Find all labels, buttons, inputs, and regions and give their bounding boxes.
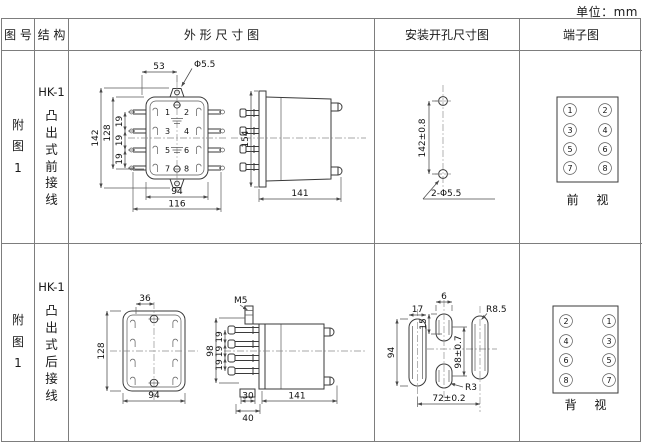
dim-mid-offset: 15 bbox=[419, 318, 429, 329]
radius-large-label: R8.5 bbox=[486, 305, 507, 315]
dim-top-width: 53 bbox=[153, 62, 164, 72]
view-label: 前 视 bbox=[567, 192, 616, 207]
row1-mounting-drawing: 142±0.8 2-Φ5.5 bbox=[375, 51, 520, 244]
terminal-number: 4 bbox=[184, 127, 189, 136]
model-label: HK-1 bbox=[38, 280, 64, 294]
dim-mid-width: 6 bbox=[441, 292, 447, 302]
terminal-number: 3 bbox=[606, 337, 611, 346]
terminal-number: 5 bbox=[567, 145, 572, 154]
dim-width: 94 bbox=[171, 187, 183, 197]
dim-side-depth: 141 bbox=[288, 392, 305, 402]
dim-center-height: 98±0.7 bbox=[454, 335, 464, 368]
dim-pitch: 19 bbox=[215, 331, 225, 343]
dim-height-outer: 142 bbox=[91, 129, 101, 146]
terminal-number: 7 bbox=[567, 164, 572, 173]
outline-front-wiring-svg: 1 2 3 4 5 6 7 8 53 Φ5.5 142 128 bbox=[69, 51, 374, 243]
terminal-number: 3 bbox=[165, 127, 170, 136]
radius-small-label: R3 bbox=[465, 383, 477, 393]
header-figure-no: 图 号 bbox=[2, 19, 35, 51]
side-view: 154 141 bbox=[231, 91, 366, 202]
row2-terminal-diagram: 2 1 4 3 6 5 8 7 背 视 bbox=[520, 244, 642, 441]
terminal-number: 5 bbox=[165, 146, 170, 155]
dim-pitch: 19 bbox=[115, 135, 125, 147]
terminal-number: 6 bbox=[563, 356, 568, 365]
dim-width-outer: 116 bbox=[168, 200, 185, 210]
terminal-number: 1 bbox=[567, 106, 572, 115]
terminal-number: 2 bbox=[602, 106, 607, 115]
dim-hole-diameter: Φ5.5 bbox=[194, 60, 215, 70]
header-terminal: 端子图 bbox=[520, 19, 642, 51]
terminal-number: 4 bbox=[602, 126, 607, 135]
row2-figure-no: 附图1 bbox=[2, 244, 35, 441]
front-view-dimensions: 53 Φ5.5 142 128 19 19 19 94 bbox=[91, 60, 221, 212]
terminal-number: 6 bbox=[184, 146, 189, 155]
model-label: HK-1 bbox=[38, 85, 64, 99]
row2-structure: HK-1 凸出式后接线 bbox=[35, 244, 69, 441]
figure-label: 附图1 bbox=[11, 310, 25, 375]
dim-left-height: 94 bbox=[387, 347, 397, 359]
terminal-number: 8 bbox=[602, 164, 607, 173]
dim-hole-spacing: 142±0.8 bbox=[418, 118, 428, 157]
front-view-case bbox=[128, 82, 226, 193]
terminal-number: 2 bbox=[184, 108, 189, 117]
dim-width: 94 bbox=[148, 391, 160, 401]
side-view-studs bbox=[228, 326, 259, 375]
row1-outline-drawing: 1 2 3 4 5 6 7 8 53 Φ5.5 142 128 bbox=[69, 51, 375, 244]
terminal-number: 1 bbox=[606, 317, 611, 326]
dim-foot: 30 bbox=[242, 392, 254, 402]
dim-pitch: 19 bbox=[115, 153, 125, 165]
header-mounting: 安装开孔尺寸图 bbox=[375, 19, 520, 51]
row2-mounting-drawing: 17 94 6 15 98±0.7 bbox=[375, 244, 520, 441]
dim-height: 128 bbox=[97, 342, 107, 359]
datasheet-page: { "unit_label": "单位：mm", "header": { "fi… bbox=[0, 0, 645, 447]
mounting-rear-wiring-svg: 17 94 6 15 98±0.7 bbox=[375, 244, 519, 440]
row1-terminal-diagram: 1 2 3 4 5 6 7 8 前 视 bbox=[520, 51, 642, 244]
mounting-front-wiring-svg: 142±0.8 2-Φ5.5 bbox=[375, 51, 519, 243]
dim-top-width: 36 bbox=[139, 294, 151, 304]
dim-side-height: 154 bbox=[241, 130, 251, 147]
mounting-holes-label: 2-Φ5.5 bbox=[431, 189, 461, 199]
terminal-number: 1 bbox=[165, 108, 170, 117]
dim-side-depth: 141 bbox=[291, 189, 308, 199]
row1-figure-no: 附图1 bbox=[2, 51, 35, 244]
terminal-number: 8 bbox=[184, 165, 189, 174]
terminal-number: 6 bbox=[602, 145, 607, 154]
terminal-number: 7 bbox=[606, 376, 611, 385]
dim-base: 40 bbox=[242, 414, 254, 424]
dim-span: 72±0.2 bbox=[432, 394, 465, 404]
side-view: M5 98 bbox=[206, 296, 365, 424]
screw-label: M5 bbox=[234, 296, 248, 306]
row1-structure: HK-1 凸出式前接线 bbox=[35, 51, 69, 244]
terminal-number: 7 bbox=[165, 165, 170, 174]
header-outline: 外 形 尺 寸 图 bbox=[69, 19, 375, 51]
terminal-back-view-svg: 2 1 4 3 6 5 8 7 背 视 bbox=[520, 244, 641, 440]
terminal-number: 4 bbox=[563, 337, 568, 346]
spec-table: 图 号 结 构 外 形 尺 寸 图 安装开孔尺寸图 端子图 附图1 HK-1 凸… bbox=[1, 18, 641, 442]
structure-label: 凸出式后接线 bbox=[44, 303, 59, 404]
structure-label: 凸出式前接线 bbox=[44, 108, 59, 209]
dim-pitch: 19 bbox=[115, 116, 125, 128]
view-label: 背 视 bbox=[565, 397, 614, 412]
terminal-number: 5 bbox=[606, 356, 611, 365]
header-structure: 结 构 bbox=[35, 19, 69, 51]
row2-outline-drawing: 36 128 94 M5 bbox=[69, 244, 375, 441]
right-slot bbox=[472, 306, 488, 412]
terminal-number: 8 bbox=[563, 376, 568, 385]
dim-pitch: 19 bbox=[215, 359, 225, 371]
outline-rear-wiring-svg: 36 128 94 M5 bbox=[69, 244, 374, 440]
front-view-case bbox=[110, 302, 198, 402]
dim-pitch: 19 bbox=[215, 346, 225, 358]
figure-label: 附图1 bbox=[11, 115, 25, 180]
terminal-number: 2 bbox=[563, 317, 568, 326]
dim-height-inner: 128 bbox=[103, 124, 113, 141]
dim-slot-width: 17 bbox=[412, 305, 423, 315]
terminal-number: 3 bbox=[567, 126, 572, 135]
terminal-front-view-svg: 1 2 3 4 5 6 7 8 前 视 bbox=[520, 51, 641, 243]
